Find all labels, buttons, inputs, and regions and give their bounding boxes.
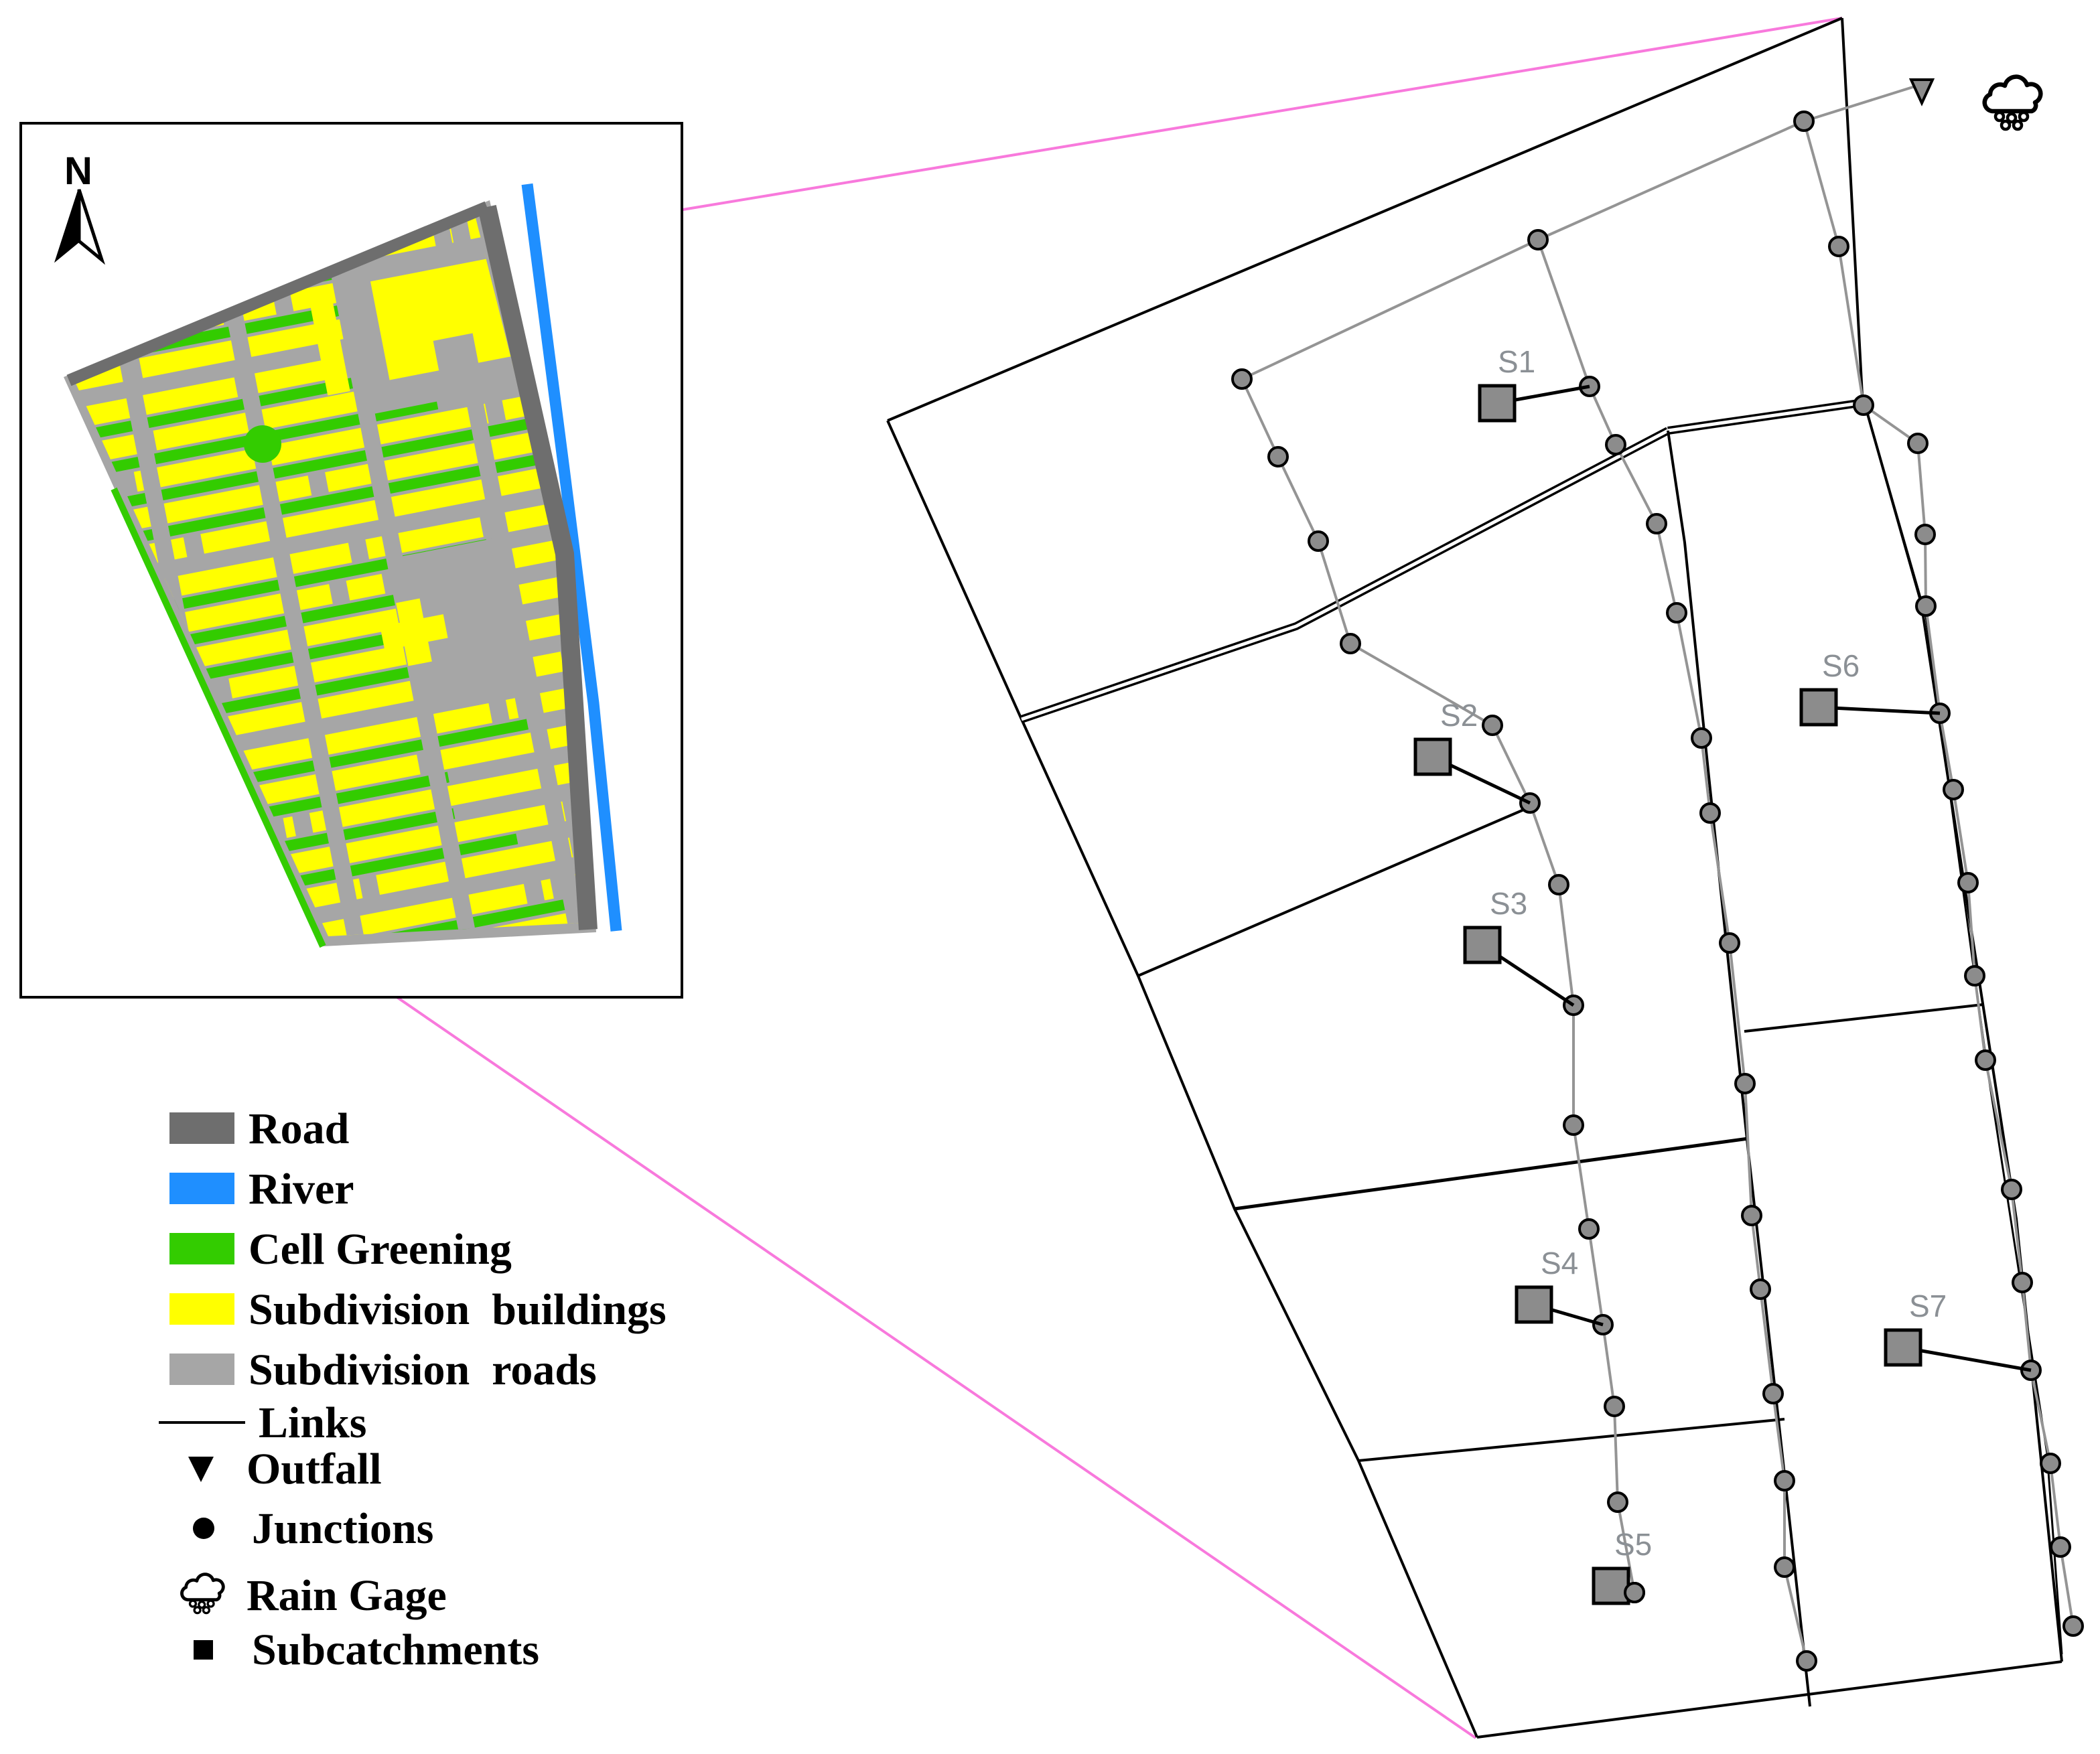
svg-text:Cell Greening: Cell Greening (249, 1225, 512, 1274)
svg-text:Links: Links (259, 1398, 366, 1447)
svg-text:Rain Gage: Rain Gage (247, 1571, 447, 1620)
svg-text:Subdivision buildings: Subdivision buildings (249, 1285, 667, 1334)
svg-text:S2: S2 (1440, 698, 1478, 733)
svg-text:N: N (64, 149, 92, 193)
svg-text:Subcatchments: Subcatchments (252, 1625, 539, 1674)
svg-text:S3: S3 (1490, 886, 1527, 921)
svg-text:Road: Road (249, 1104, 349, 1153)
svg-text:Outfall: Outfall (247, 1445, 382, 1493)
svg-text:River: River (249, 1165, 354, 1214)
svg-text:S4: S4 (1541, 1246, 1578, 1281)
svg-text:S7: S7 (1909, 1289, 1947, 1323)
svg-text:S5: S5 (1614, 1527, 1652, 1562)
svg-text:Junctions: Junctions (252, 1504, 433, 1553)
svg-text:S6: S6 (1822, 648, 1860, 683)
svg-text:S1: S1 (1498, 344, 1535, 379)
svg-text:Subdivision roads: Subdivision roads (249, 1345, 597, 1394)
